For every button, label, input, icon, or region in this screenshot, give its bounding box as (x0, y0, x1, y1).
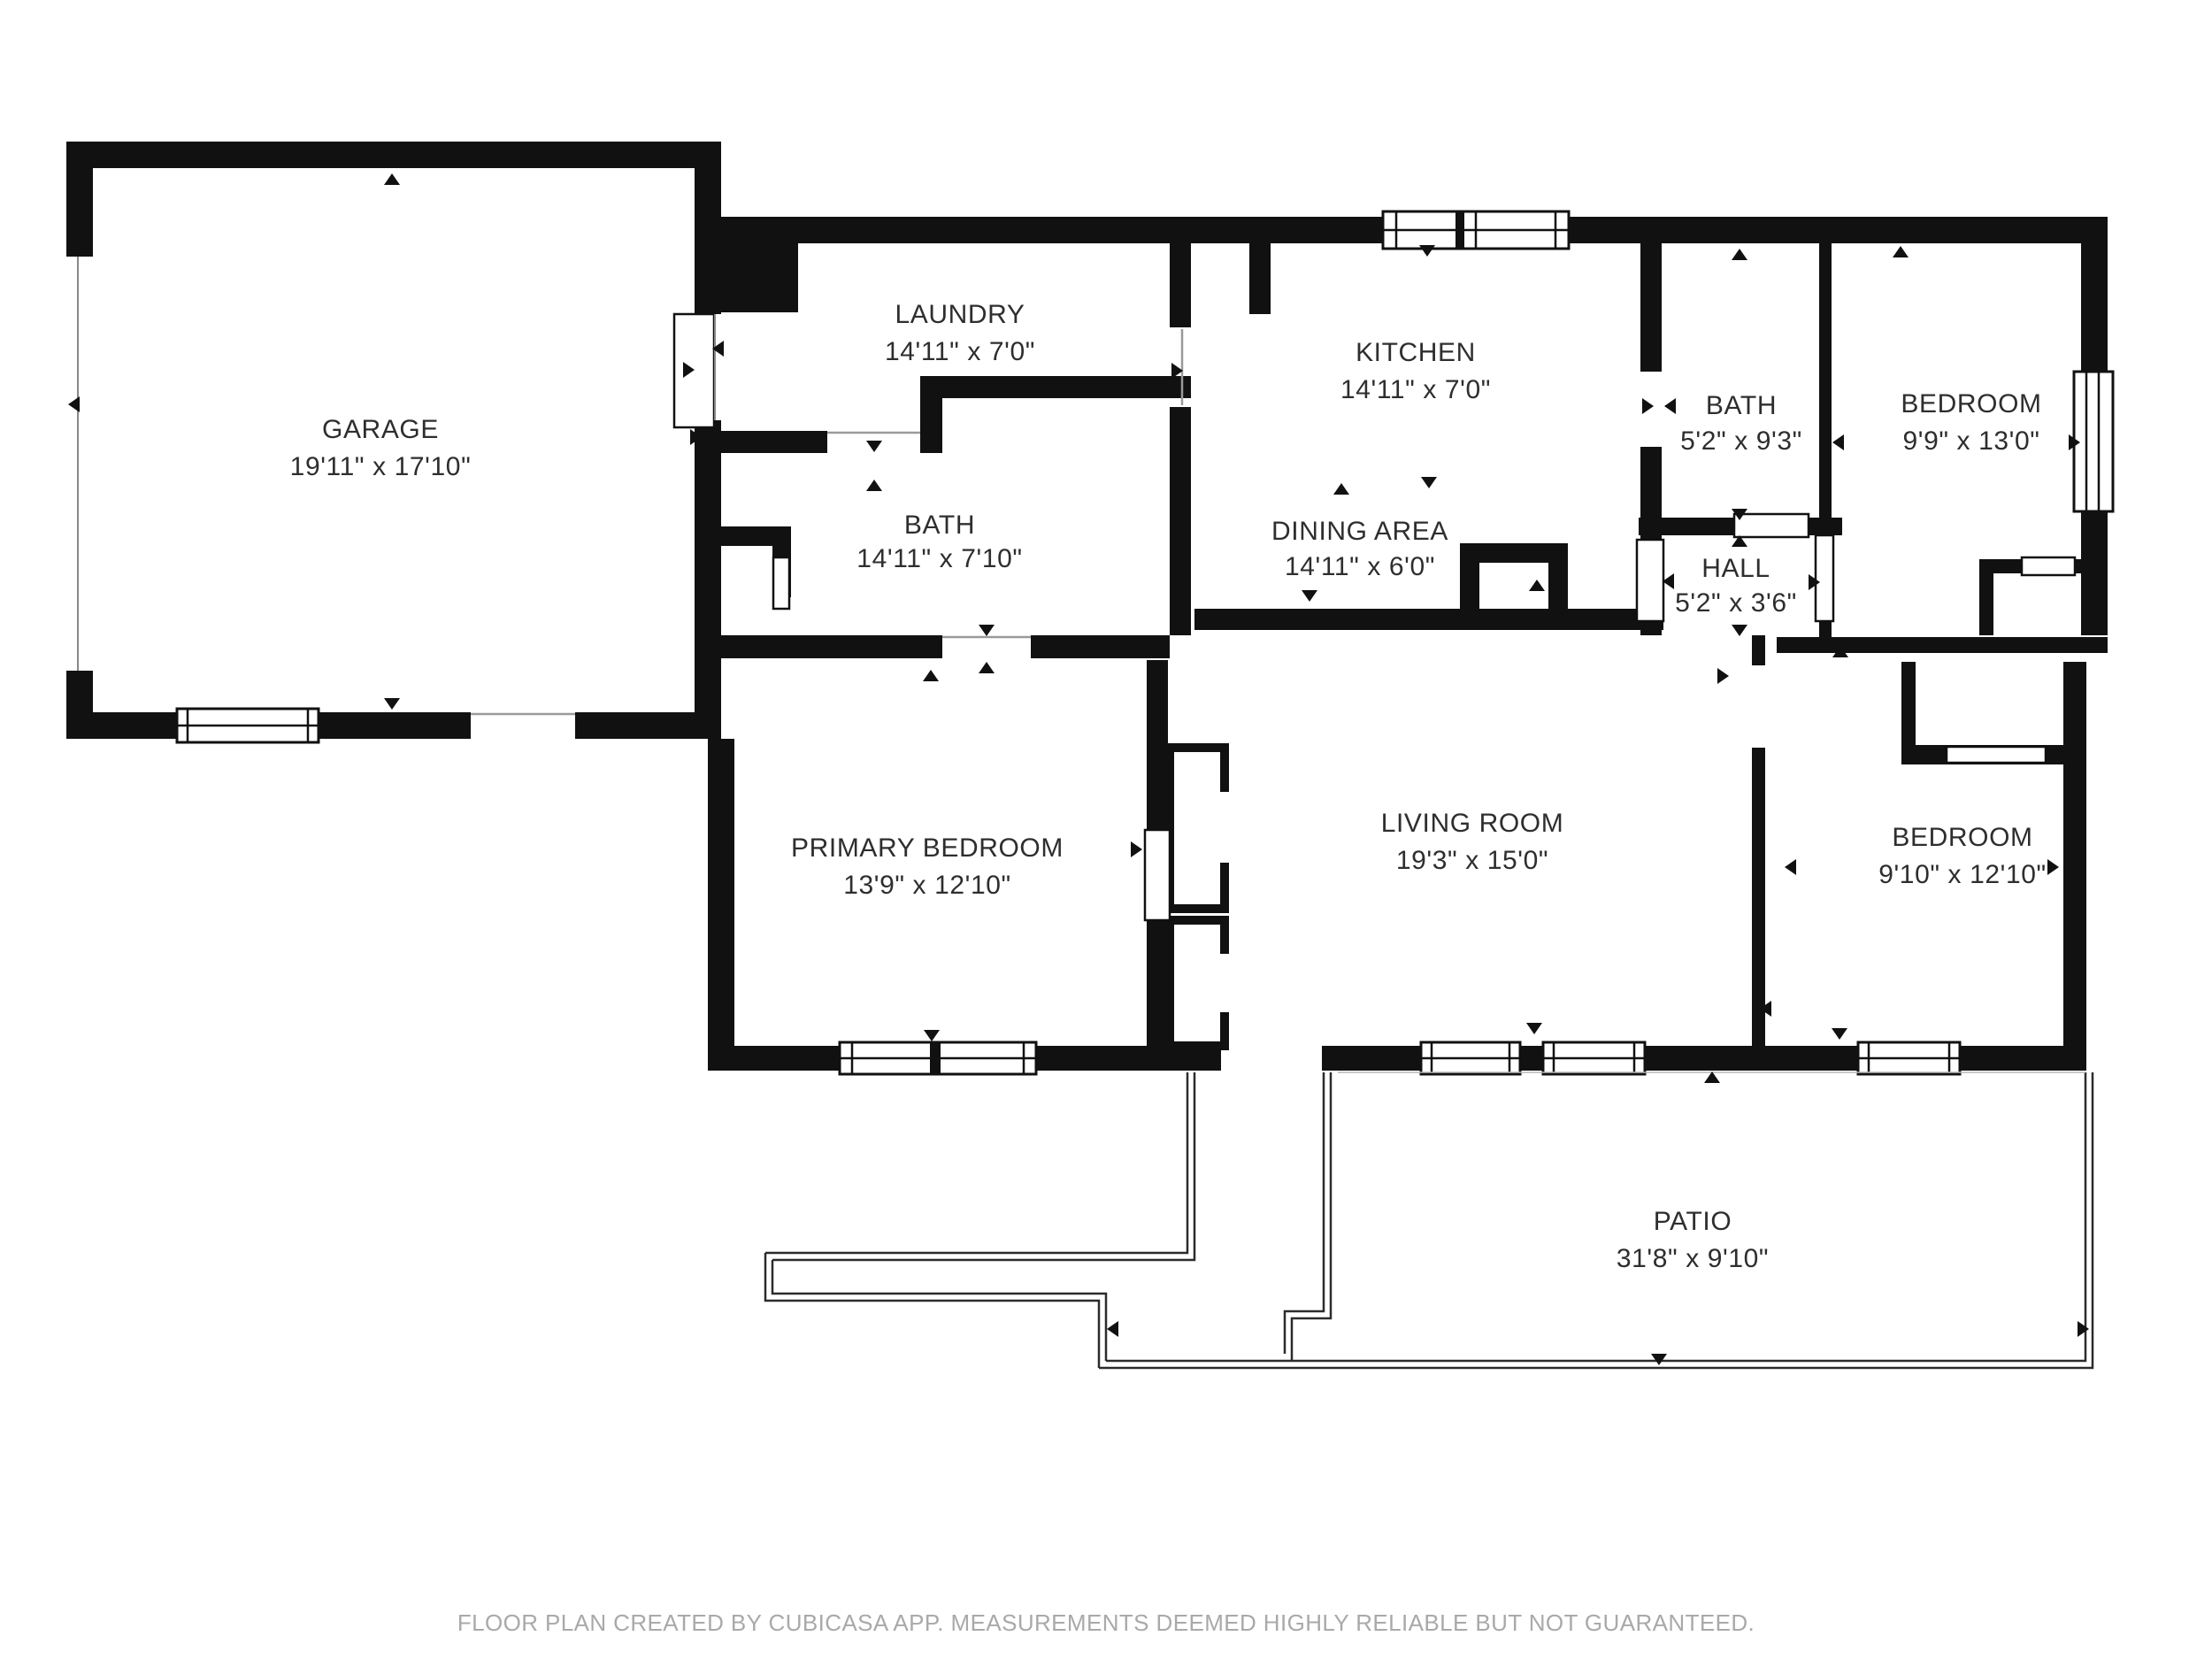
primary-closet-box-1 (1170, 748, 1225, 909)
hall-top-wall-left (1639, 518, 1736, 535)
room-dims: 14'11" x 6'0" (1285, 552, 1435, 581)
garage-bottom-wall-3 (575, 712, 721, 739)
room-name: BATH (1706, 391, 1777, 420)
door-symbol-hall-dining (1637, 540, 1663, 621)
bottom-wall-3 (1322, 1046, 1421, 1071)
kitchen-right-wall-top (1640, 217, 1662, 372)
arrow-up-icon (1893, 246, 1909, 257)
laundry-utility-block (699, 234, 798, 312)
bath-stall-door (773, 557, 789, 609)
window-symbol-living-1 (1421, 1042, 1520, 1074)
room-label-garage: GARAGE 19'11" x 17'10" (290, 415, 472, 481)
room-dims: 14'11" x 7'0" (885, 337, 1035, 366)
arrow-down-icon (1421, 477, 1437, 488)
garage-left-wall-top (66, 142, 93, 257)
room-label-living-room: LIVING ROOM 19'3" x 15'0" (1381, 809, 1564, 875)
room-dims: 13'9" x 12'10" (843, 871, 1011, 900)
room-name: BEDROOM (1901, 389, 2041, 419)
room-label-dining-area: DINING AREA 14'11" x 6'0" (1271, 517, 1448, 581)
pantry-right-wall (1548, 543, 1568, 630)
dimension-arrows (68, 173, 2089, 1365)
room-name: DINING AREA (1271, 517, 1448, 546)
room-label-hall: HALL 5'2" x 3'6" (1675, 554, 1797, 618)
hall-right-wall-cap-top (1819, 518, 1832, 537)
bottom-wall-1 (708, 1046, 840, 1071)
footer-disclaimer: FLOOR PLAN CREATED BY CUBICASA APP. MEAS… (457, 1609, 1755, 1636)
bath-primary-wall-right (1031, 635, 1170, 658)
arrow-up-icon (1333, 483, 1349, 495)
room-dims: 5'2" x 3'6" (1675, 588, 1797, 618)
top-wall-left (695, 217, 1383, 243)
arrow-down-icon (924, 1030, 940, 1041)
primary-right-wall-top (1147, 660, 1168, 830)
arrow-down-icon (1732, 625, 1747, 636)
primary-closet-box-2 (1170, 920, 1225, 1046)
arrow-left-icon (68, 396, 80, 412)
room-name: KITCHEN (1356, 338, 1476, 367)
arrow-left-icon (1832, 434, 1844, 450)
room-name: BEDROOM (1892, 823, 2032, 852)
window-symbol-bedroom-bottom (1858, 1042, 1960, 1074)
primary-closet-opening-1 (1217, 792, 1230, 863)
door-symbol-garage-laundry (674, 314, 714, 427)
room-label-bedroom-bottom: BEDROOM 9'10" x 12'10" (1878, 823, 2047, 889)
patio-outline (765, 1072, 2093, 1368)
arrow-right-icon (1717, 668, 1729, 684)
room-label-laundry: LAUNDRY 14'11" x 7'0" (885, 300, 1035, 366)
window-symbol-primary (840, 1042, 1036, 1074)
primary-left-wall (708, 739, 734, 1046)
garage-bottom-wall-1 (66, 712, 177, 739)
laundry-bottom-wall-right (920, 376, 1191, 398)
arrow-right-icon (2047, 859, 2059, 875)
primary-closet-opening-2 (1217, 954, 1230, 1012)
room-dims: 9'10" x 12'10" (1878, 860, 2047, 889)
room-name: HALL (1701, 554, 1770, 583)
room-label-primary-bedroom: PRIMARY BEDROOM 13'9" x 12'10" (791, 833, 1064, 900)
patio-walkway-line (765, 1072, 1187, 1253)
arrow-down-icon (1526, 1023, 1542, 1034)
arrow-down-icon (1651, 1354, 1667, 1365)
arrow-down-icon (1832, 1028, 1847, 1040)
arrow-right-icon (1642, 398, 1654, 414)
patio-step-line (1292, 1072, 1331, 1361)
arrow-down-icon (1419, 245, 1435, 257)
bedroom-bottom-right-wall (2063, 662, 2086, 1046)
patio-walkway-line (772, 1072, 1194, 1260)
arrow-down-icon (1302, 590, 1317, 602)
room-label-kitchen: KITCHEN 14'11" x 7'0" (1340, 338, 1491, 404)
floor-plan-canvas: GARAGE 19'11" x 17'10" LAUNDRY 14'11" x … (0, 0, 2212, 1659)
garage-right-wall-bottom (695, 420, 721, 712)
room-label-patio: PATIO 31'8" x 9'10" (1617, 1207, 1769, 1273)
arrow-up-icon (1732, 249, 1747, 260)
bedrooms-divider-wall (1777, 637, 2108, 653)
bottom-wall-4 (1520, 1046, 1543, 1071)
arrow-up-icon (866, 480, 882, 491)
bedroom-bottom-left-wall (1752, 748, 1765, 1046)
patio-step-line (1285, 1072, 1324, 1354)
bottom-wall-5 (1645, 1046, 1858, 1071)
room-name: PATIO (1654, 1207, 1732, 1236)
door-symbol-closet-top-bedroom (2022, 557, 2075, 575)
laundry-bottom-wall-left (699, 431, 827, 453)
patio-border-line (1106, 1072, 2085, 1361)
garage-bottom-wall-2 (319, 712, 471, 739)
arrow-up-icon (923, 670, 939, 681)
room-dims: 31'8" x 9'10" (1617, 1244, 1769, 1273)
dining-bottom-wall (1194, 609, 1663, 630)
arrow-left-icon (1785, 859, 1796, 875)
door-symbol-closet-bottom-bedroom (1947, 747, 2046, 763)
room-dims: 19'3" x 15'0" (1396, 846, 1548, 875)
window-symbol-living-2 (1543, 1042, 1645, 1074)
door-symbol-hall-bedroom (1816, 535, 1833, 621)
window-symbol-bedroom-top (2074, 372, 2113, 511)
bedroom-bottom-left-wall-top (1752, 635, 1765, 665)
room-label-bedroom-top: BEDROOM 9'9" x 13'0" (1901, 389, 2041, 456)
laundry-kitchen-wall-top (1170, 217, 1191, 327)
window-symbol-kitchen (1383, 211, 1569, 249)
arrow-up-icon (384, 173, 400, 185)
room-dims: 14'11" x 7'10" (856, 544, 1022, 573)
laundry-kitchen-wall-bottom (1170, 407, 1191, 635)
arrow-up-icon (1704, 1071, 1720, 1083)
kitchen-wall-stub (1249, 243, 1271, 314)
room-label-bath-main: BATH 14'11" x 7'10" (856, 511, 1022, 573)
arrow-up-icon (979, 662, 995, 673)
window-symbol-garage (177, 709, 319, 742)
bath-primary-wall-left (708, 635, 942, 658)
arrow-right-icon (2078, 1321, 2089, 1337)
room-dims: 5'2" x 9'3" (1680, 426, 1802, 456)
bottom-wall-6 (1960, 1046, 2086, 1071)
room-name: BATH (904, 511, 975, 540)
room-name: PRIMARY BEDROOM (791, 833, 1064, 863)
arrow-up-icon (1529, 580, 1545, 591)
arrow-down-icon (384, 698, 400, 710)
arrow-down-icon (866, 441, 882, 452)
bath-bedroom-divider (1819, 217, 1832, 518)
bedroom-top-closet-left-wall (1979, 573, 1993, 635)
bedroom-bottom-closet-left-wall (1901, 662, 1916, 745)
walls (66, 142, 2108, 1071)
patio-border-line (1099, 1072, 2093, 1368)
room-name: GARAGE (322, 415, 439, 444)
patio-walkway-line (772, 1260, 1106, 1361)
arrow-left-icon (1664, 398, 1676, 414)
room-name: LAUNDRY (895, 300, 1025, 329)
primary-right-wall-bottom (1147, 920, 1168, 1046)
door-symbol-hall-bath (1734, 514, 1809, 537)
garage-top-wall (66, 142, 721, 168)
door-symbol-primary (1145, 830, 1170, 920)
room-name: LIVING ROOM (1381, 809, 1564, 838)
patio-walkway-line (765, 1253, 1099, 1368)
room-label-bath-small: BATH 5'2" x 9'3" (1680, 391, 1802, 456)
arrow-down-icon (979, 625, 995, 636)
arrow-left-icon (1107, 1321, 1118, 1337)
floor-plan-page: GARAGE 19'11" x 17'10" LAUNDRY 14'11" x … (0, 0, 2212, 1659)
room-dims: 14'11" x 7'0" (1340, 375, 1491, 404)
room-dims: 9'9" x 13'0" (1902, 426, 2039, 456)
bath-stall-top-wall (701, 526, 785, 546)
arrow-right-icon (1131, 841, 1142, 857)
room-dims: 19'11" x 17'10" (290, 452, 472, 481)
